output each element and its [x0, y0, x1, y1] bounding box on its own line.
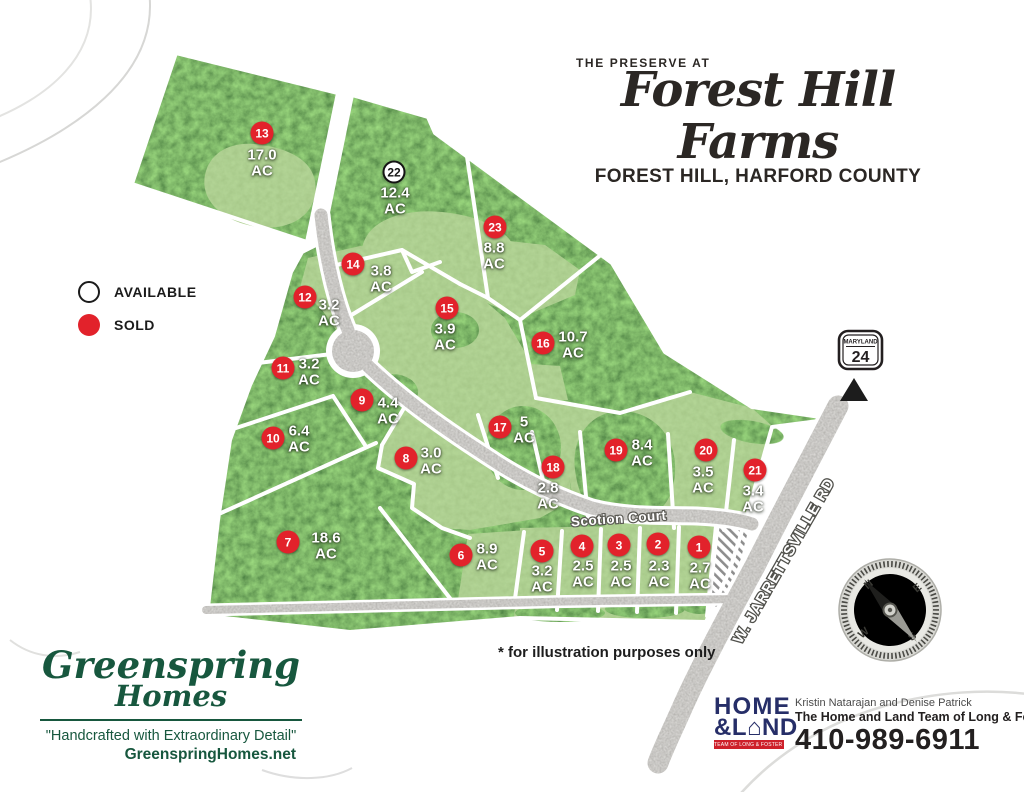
- logo-amp-l: &L: [714, 714, 747, 741]
- home-and-land-logo-land: &L⌂ND: [714, 717, 784, 738]
- legend-row-sold: SOLD: [78, 314, 197, 336]
- greenspring-logo-block: Greenspring Homes "Handcrafted with Extr…: [30, 646, 312, 764]
- route-24-sign: MARYLAND 24: [839, 331, 882, 369]
- north-arrow-icon: [840, 378, 868, 401]
- phone-number: 410-989-6911: [795, 725, 1024, 756]
- route-sign-number: 24: [852, 349, 870, 366]
- home-and-land-logo: HOME &L⌂ND TEAM OF LONG & FOSTER REAL ES…: [714, 697, 784, 749]
- greenspring-website: GreenspringHomes.net: [30, 746, 312, 764]
- route-sign-state: MARYLAND: [843, 340, 878, 346]
- legend-row-available: AVAILABLE: [78, 281, 197, 303]
- compass-rose-icon: N E S W: [818, 538, 962, 682]
- available-dot-icon: [78, 281, 100, 303]
- legend-sold-label: SOLD: [114, 317, 155, 333]
- house-icon: ⌂: [747, 714, 762, 741]
- greenspring-divider: [40, 719, 302, 721]
- greenspring-tagline: "Handcrafted with Extraordinary Detail": [30, 728, 312, 744]
- legend-available-label: AVAILABLE: [114, 284, 197, 300]
- page-title: Forest Hill Farms: [548, 64, 968, 168]
- contact-info: Kristin Natarajan and Denise Patrick The…: [795, 697, 1024, 756]
- home-and-land-block: HOME &L⌂ND TEAM OF LONG & FOSTER REAL ES…: [714, 697, 1024, 756]
- flyer-page: Scotion Court W. JARRETTSVILLE RD MARYLA…: [0, 0, 1024, 792]
- title-block: THE PRESERVE AT Forest Hill Farms FOREST…: [548, 56, 968, 188]
- disclaimer-note: * for illustration purposes only: [498, 644, 716, 661]
- title-subtitle: FOREST HILL, HARFORD COUNTY: [548, 166, 968, 188]
- sold-dot-icon: [78, 314, 100, 336]
- legend: AVAILABLE SOLD: [78, 281, 197, 347]
- logo-nd: ND: [762, 714, 798, 741]
- team-name: The Home and Land Team of Long & Foster: [795, 710, 1024, 725]
- agent-names: Kristin Natarajan and Denise Patrick: [795, 697, 1024, 710]
- home-and-land-banner: TEAM OF LONG & FOSTER REAL ESTATE: [714, 740, 784, 749]
